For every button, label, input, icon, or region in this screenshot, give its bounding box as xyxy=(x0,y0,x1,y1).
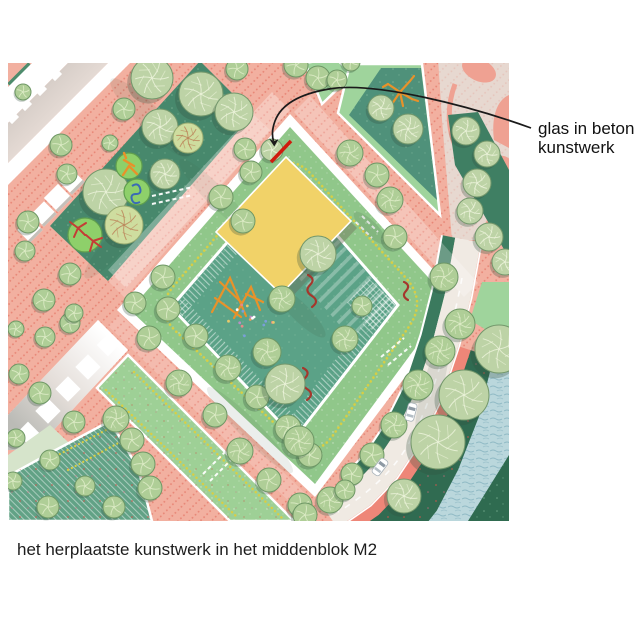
svg-text:het herplaatste kunstwerk in h: het herplaatste kunstwerk in het middenb… xyxy=(17,540,377,559)
svg-text:glas in beton: glas in beton xyxy=(538,119,634,138)
svg-text:kunstwerk: kunstwerk xyxy=(538,138,615,157)
